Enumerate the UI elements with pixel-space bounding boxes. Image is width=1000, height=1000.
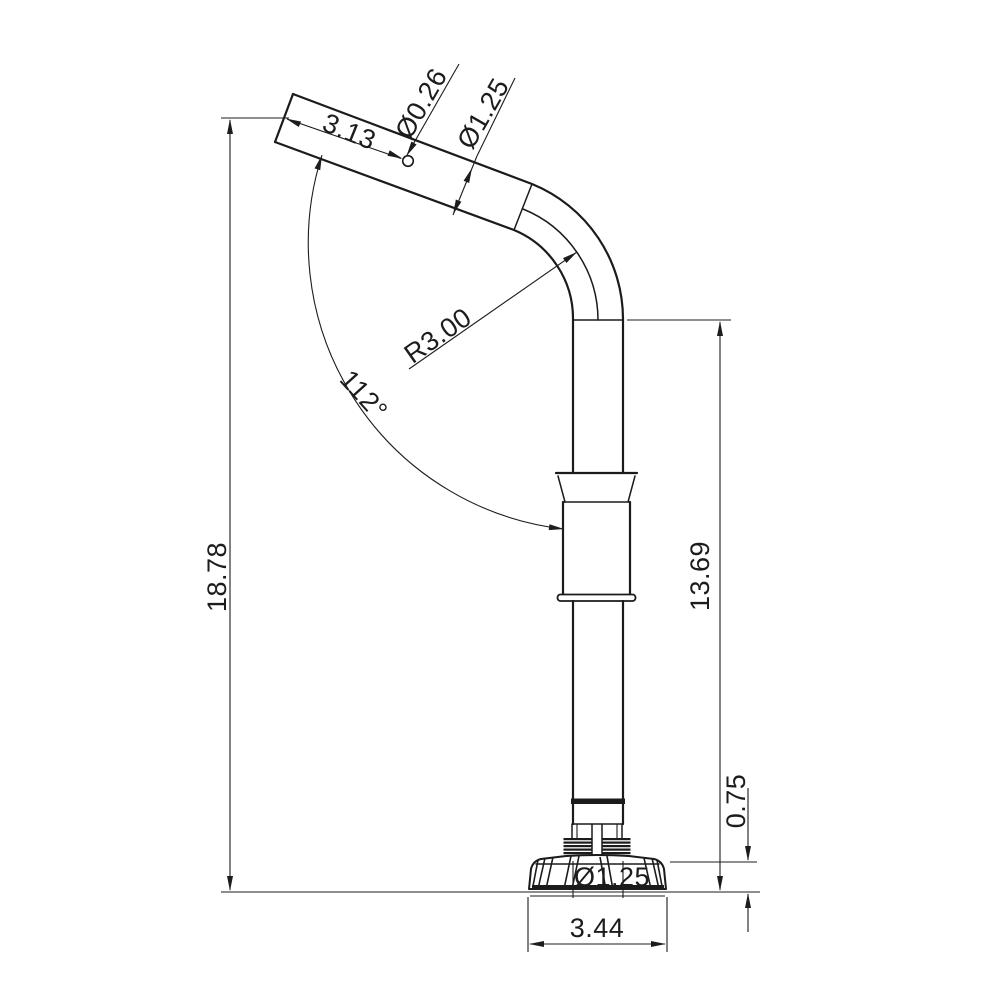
lower-pole <box>571 601 625 860</box>
arrow-down <box>745 846 751 861</box>
arrow-up <box>745 893 751 908</box>
bend-tangent-top <box>514 184 532 230</box>
arrow-up <box>717 321 723 336</box>
part-outline <box>275 94 623 473</box>
dim-bend-radius: R3.00 <box>399 250 579 370</box>
dim-base-height: 0.75 <box>721 774 751 932</box>
bend-mid-arc <box>523 209 598 320</box>
dim-text-overall-height: 18.78 <box>202 542 232 612</box>
arrow-up <box>227 119 233 134</box>
drawing-page: 18.78 13.69 0.75 3.44 3.13 Ø0.26 <box>0 0 1000 1000</box>
arrow-left <box>529 941 544 947</box>
arrow-down <box>717 876 723 891</box>
dim-text-hole-diameter: Ø0.26 <box>389 63 453 144</box>
dim-text-base-height: 0.75 <box>721 774 751 829</box>
pole-collar-band <box>571 799 625 805</box>
dim-tube-diameter: Ø1.25 <box>450 73 515 216</box>
dim-text-bend-radius: R3.00 <box>399 302 477 369</box>
dim-text-bend-angle: 112° <box>334 364 394 426</box>
hole <box>403 156 414 167</box>
coupler-bottom-lip <box>558 595 636 602</box>
arrow-hole <box>387 150 403 161</box>
arrow-down <box>227 876 233 891</box>
coupler-flare-left <box>558 476 565 502</box>
dim-text-tube-diameter: Ø1.25 <box>451 73 515 154</box>
dim-base-tube-diameter: Ø1.25 <box>574 856 650 892</box>
coupler-flare-right <box>628 476 635 502</box>
dim-text-lower-height: 13.69 <box>685 541 715 611</box>
arrow-top-edge <box>464 167 475 183</box>
extension-lines <box>221 118 760 952</box>
dim-overall-height: 18.78 <box>202 119 233 891</box>
arrow-right <box>651 941 666 947</box>
technical-drawing: 18.78 13.69 0.75 3.44 3.13 Ø0.26 <box>0 0 1000 1000</box>
dim-text-arm-length: 3.13 <box>318 108 380 156</box>
dim-text-base-width: 3.44 <box>570 913 625 943</box>
coupler <box>556 473 637 601</box>
dim-base-width: 3.44 <box>529 913 666 947</box>
dim-lower-height: 13.69 <box>685 321 723 891</box>
